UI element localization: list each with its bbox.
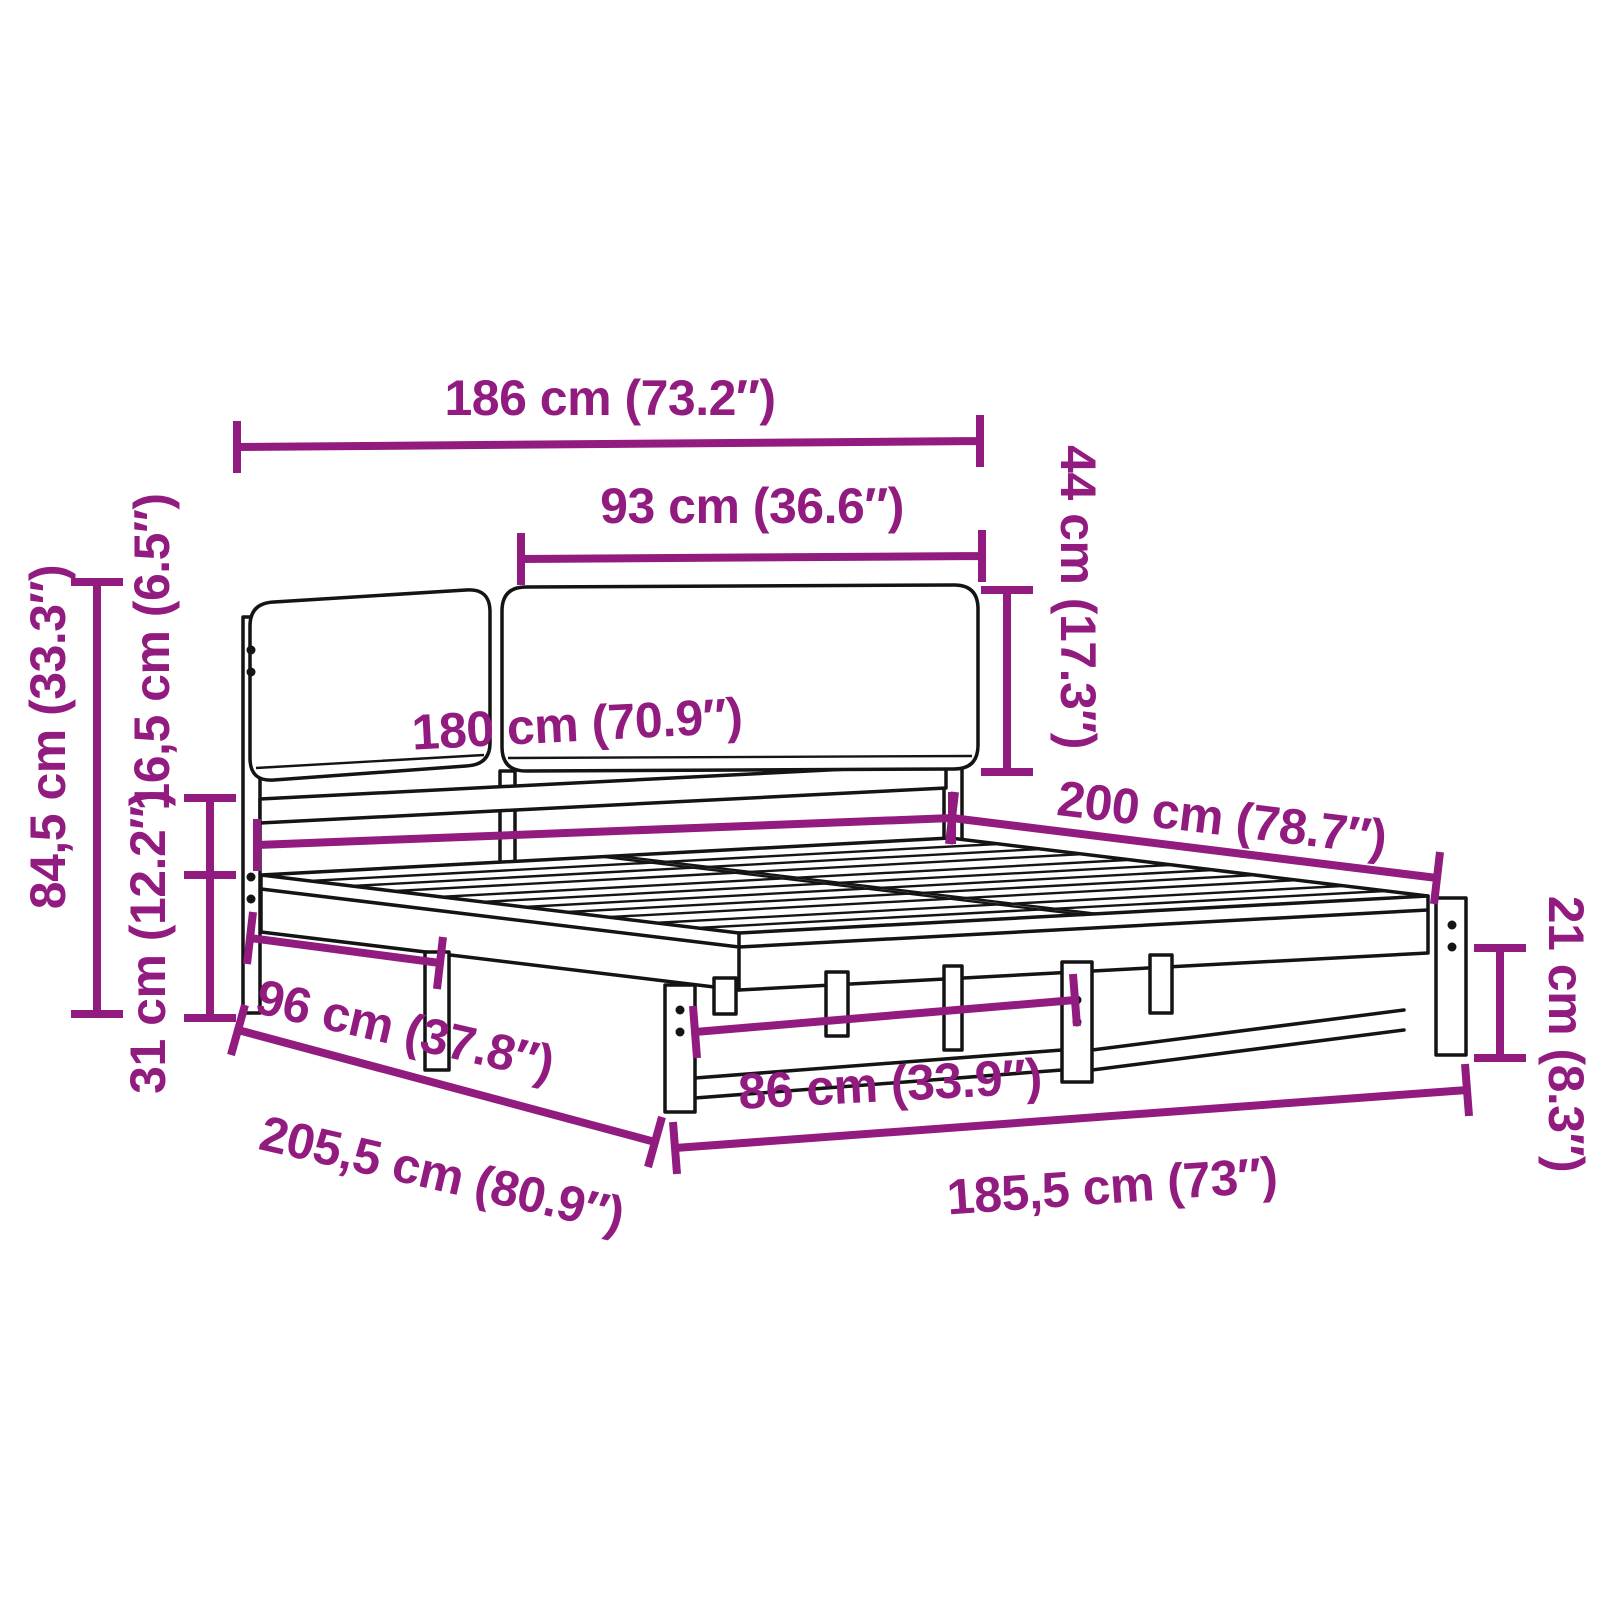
dim-line-foot-clearance: [1474, 948, 1526, 1058]
rear-leg: [826, 972, 848, 1036]
dim-label-under-bed-clearance: 31 cm (12.2″): [119, 790, 177, 1094]
corner-leg-front-left: [665, 985, 695, 1112]
dim-line-rail-and-clearance: [184, 798, 236, 1018]
dim-line-headboard-height: [71, 582, 123, 1014]
dim-line-cushion-height: [981, 590, 1033, 772]
rear-leg: [1150, 955, 1172, 1013]
dim-label-headboard-height: 84,5 cm (33.3″): [19, 565, 77, 909]
bed-dimension-diagram: 186 cm (73.2″) 93 cm (36.6″) 44 cm (17.3…: [0, 0, 1600, 1600]
dim-label-headboard-width: 186 cm (73.2″): [444, 369, 775, 427]
dim-line-cushion-width: [521, 530, 982, 585]
dim-label-cushion-height: 44 cm (17.3″): [1049, 445, 1107, 749]
diagram-canvas: [0, 0, 1600, 1600]
dim-label-foot-clearance: 21 cm (8.3″): [1537, 896, 1595, 1172]
dim-line-leg-spacing: [693, 974, 1077, 1058]
dim-label-rail-height: 16,5 cm (6.5″): [123, 493, 181, 810]
rear-leg: [714, 978, 736, 1014]
dim-label-cushion-width: 93 cm (36.6″): [600, 477, 904, 535]
